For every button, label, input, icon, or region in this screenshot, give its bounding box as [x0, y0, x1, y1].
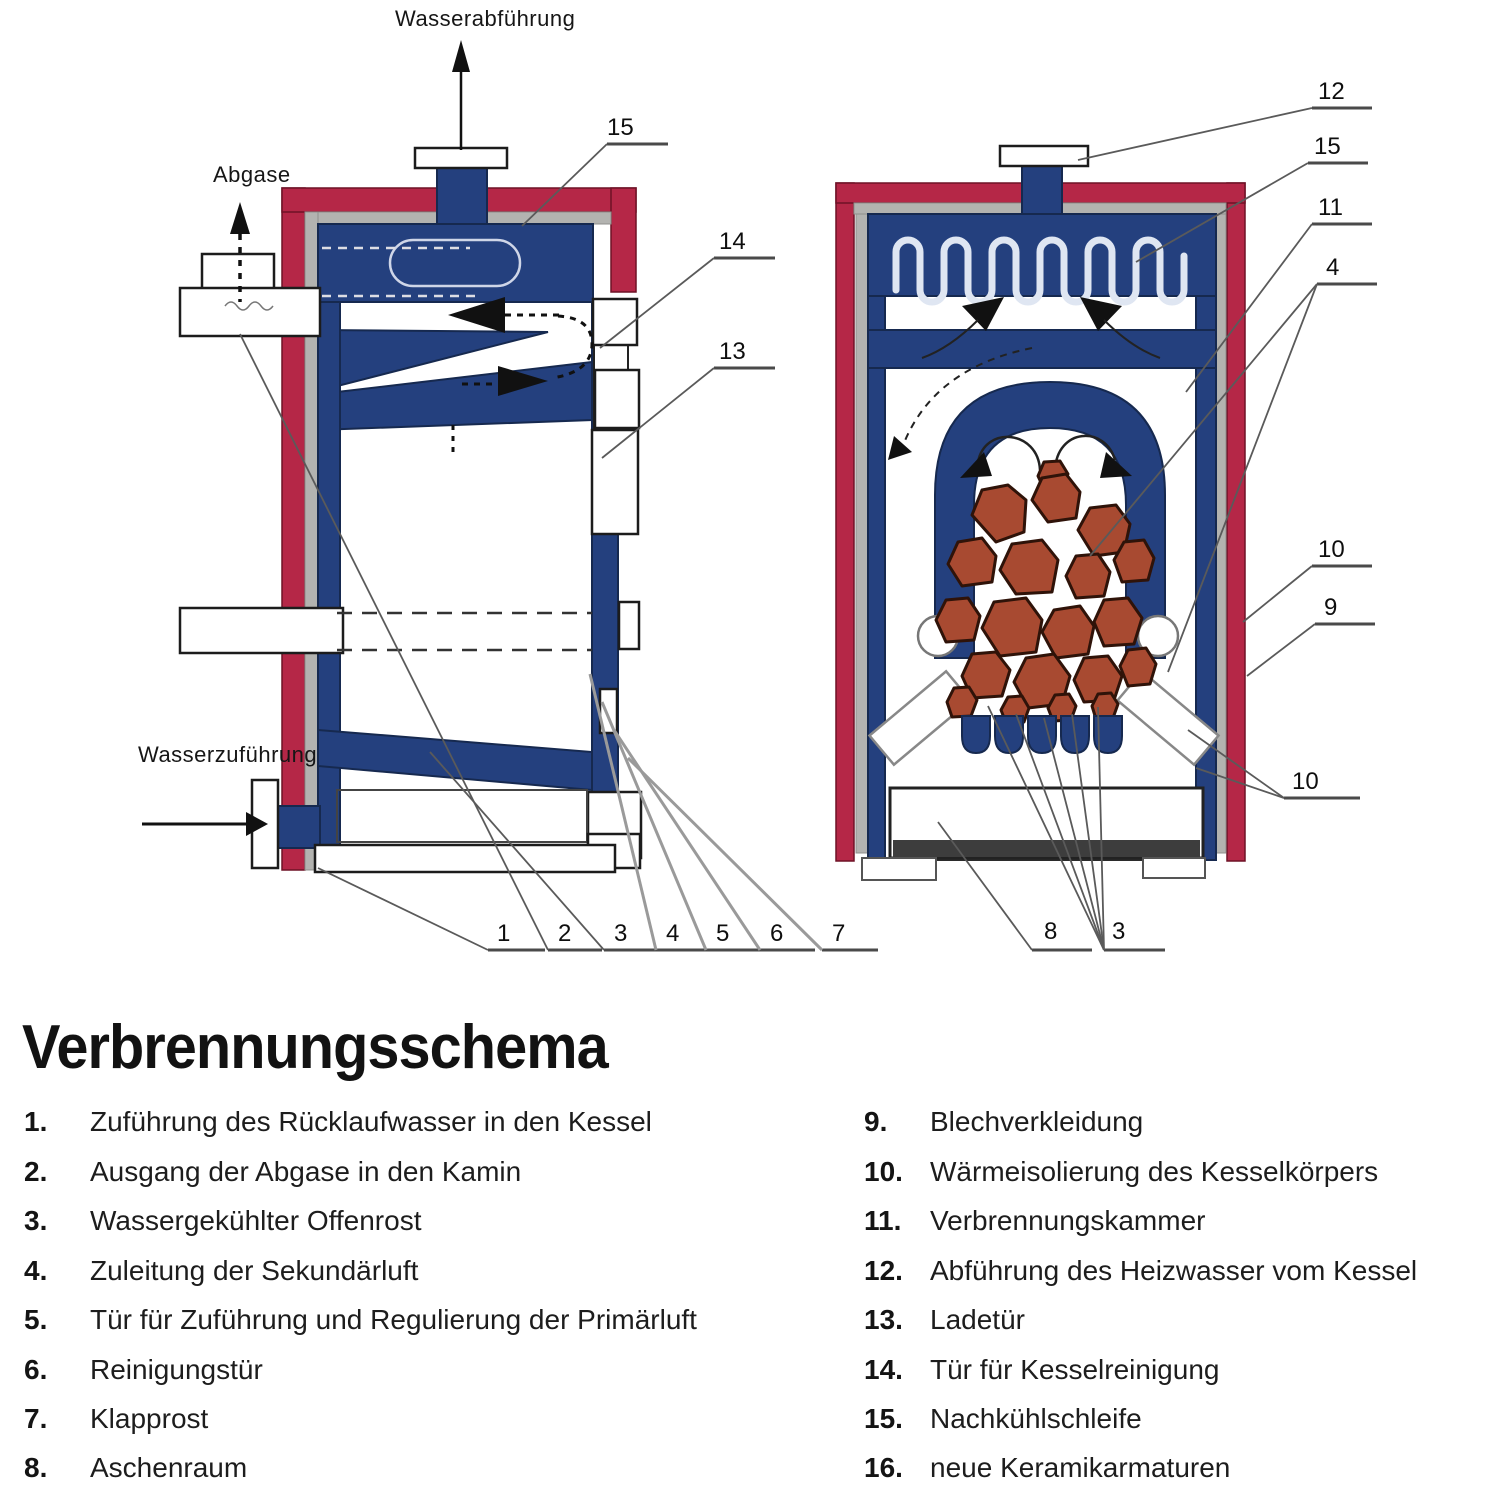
legend-14-number: 14. — [864, 1354, 903, 1386]
water-outlet-arrow-icon — [452, 40, 470, 150]
callout-left-13: 13 — [719, 338, 746, 366]
legend-5-text: Tür für Zuführung und Regulierung der Pr… — [90, 1304, 697, 1336]
legend-16-text: neue Keramikarmaturen — [930, 1452, 1230, 1484]
boiler-diagram — [0, 0, 1500, 1000]
legend-12-number: 12. — [864, 1255, 903, 1287]
legend-13-number: 13. — [864, 1304, 903, 1336]
foot-right — [1143, 858, 1205, 878]
door-loading — [592, 430, 638, 534]
legend-11-text: Verbrennungskammer — [930, 1205, 1205, 1237]
callout-right-8: 8 — [1044, 918, 1057, 946]
legend-12-text: Abführung des Heizwasser vom Kessel — [930, 1255, 1417, 1287]
legend-6-number: 6. — [24, 1354, 47, 1386]
legend-15-number: 15. — [864, 1403, 903, 1435]
legend-1-number: 1. — [24, 1106, 47, 1138]
legend-2-text: Ausgang der Abgase in den Kamin — [90, 1156, 521, 1188]
callout-right-10b: 10 — [1292, 768, 1319, 796]
legend-9-number: 9. — [864, 1106, 887, 1138]
upper-water-beam — [868, 330, 1216, 368]
right-boiler-water-wall-left — [868, 214, 885, 860]
legend-14-text: Tür für Kesselreinigung — [930, 1354, 1219, 1386]
legend-6-text: Reinigungstür — [90, 1354, 263, 1386]
flue-gas-label: Abgase — [213, 162, 291, 188]
door-cleaning — [595, 370, 639, 428]
callout-left-7: 7 — [832, 920, 845, 948]
legend-11-number: 11. — [864, 1205, 901, 1237]
legend-3-number: 3. — [24, 1205, 47, 1237]
callout-left-5: 5 — [716, 920, 729, 948]
flue-duct-upper-box — [202, 254, 274, 290]
legend-4-text: Zuleitung der Sekundärluft — [90, 1255, 418, 1287]
water-inlet-pipe — [278, 806, 320, 848]
left-boiler-outlet-flange — [415, 148, 507, 168]
right-boiler-insulation-left — [856, 203, 868, 853]
ash-pan-base — [893, 840, 1200, 857]
callout-left-3: 3 — [614, 920, 627, 948]
water-inlet-arrow-icon — [142, 812, 268, 836]
callout-left-15: 15 — [607, 114, 634, 142]
side-access-box — [180, 608, 343, 653]
legend-10-number: 10. — [864, 1156, 903, 1188]
legend-8-text: Aschenraum — [90, 1452, 247, 1484]
callout-left-6: 6 — [770, 920, 783, 948]
callout-right-4: 4 — [1326, 254, 1339, 282]
callout-right-15: 15 — [1314, 133, 1341, 161]
callout-right-10a: 10 — [1318, 536, 1345, 564]
callout-left-1: 1 — [497, 920, 510, 948]
callout-right-11: 11 — [1318, 194, 1343, 222]
legend-1-text: Zuführung des Rücklaufwasser in den Kess… — [90, 1106, 652, 1138]
bottom-slab — [315, 845, 615, 872]
callout-right-9: 9 — [1324, 594, 1337, 622]
water-inlet-label: Wasserzuführung — [138, 742, 317, 768]
callout-left-2: 2 — [558, 920, 571, 948]
legend-3-text: Wassergekühlter Offenrost — [90, 1205, 421, 1237]
right-boiler-red-frame-left — [836, 183, 854, 861]
legend-4-number: 4. — [24, 1255, 47, 1287]
foot-left — [862, 858, 936, 880]
legend-10-text: Wärmeisolierung des Kesselkörpers — [930, 1156, 1378, 1188]
right-boiler — [836, 146, 1245, 880]
flue-duct — [180, 288, 320, 336]
door-secondary-air — [619, 602, 639, 649]
door-upper — [593, 299, 637, 345]
legend-2-number: 2. — [24, 1156, 47, 1188]
legend-9-text: Blechverkleidung — [930, 1106, 1143, 1138]
legend-8-number: 8. — [24, 1452, 47, 1484]
right-boiler-red-frame-top-right — [1062, 183, 1245, 203]
page: Wasserabführung Abgase Wasserzuführung 1… — [0, 0, 1500, 1500]
water-outlet-label: Wasserabführung — [395, 6, 575, 32]
legend-15-text: Nachkühlschleife — [930, 1403, 1142, 1435]
legend-13-text: Ladetür — [930, 1304, 1025, 1336]
callout-right-3: 3 — [1112, 918, 1125, 946]
legend-7-number: 7. — [24, 1403, 47, 1435]
right-boiler-red-frame-top-left — [836, 183, 1022, 203]
legend-7-text: Klapprost — [90, 1403, 208, 1435]
callout-right-12: 12 — [1318, 78, 1345, 106]
right-boiler-water-wall-right — [1196, 214, 1216, 860]
legend-16-number: 16. — [864, 1452, 903, 1484]
left-boiler-top-plenum — [318, 224, 593, 302]
callout-left-4: 4 — [666, 920, 679, 948]
left-boiler-red-frame-right — [611, 188, 636, 292]
legend-5-number: 5. — [24, 1304, 47, 1336]
page-title: Verbrennungsschema — [22, 1012, 608, 1083]
callout-left-14: 14 — [719, 228, 746, 256]
heating-water-outlet-flange — [1000, 146, 1088, 166]
